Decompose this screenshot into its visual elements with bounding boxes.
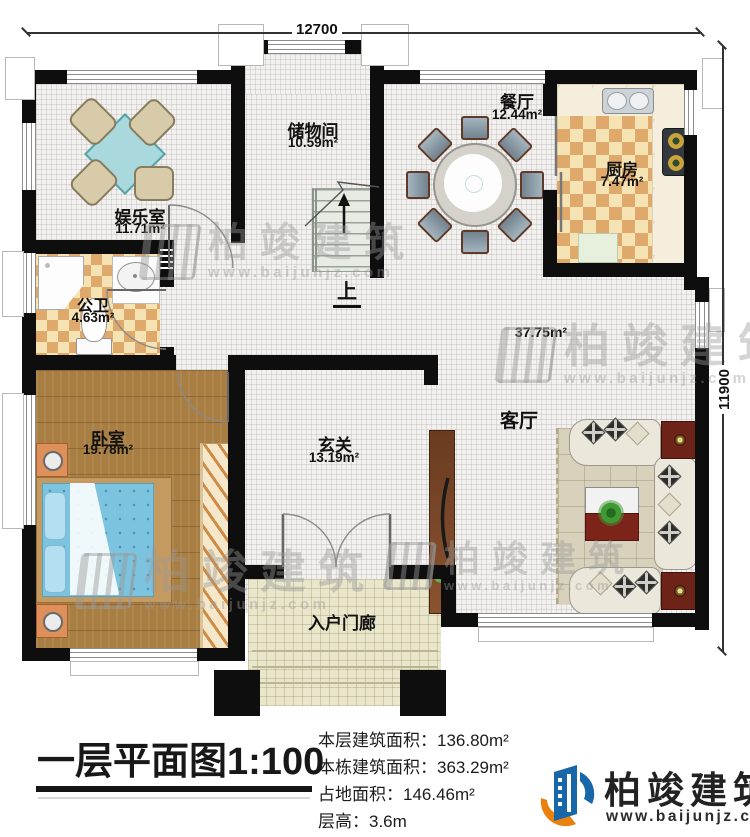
stat-row: 占地面积：146.46m² xyxy=(318,780,475,805)
porch-pillar xyxy=(214,670,260,716)
drawing-element xyxy=(558,778,562,782)
drawing-element xyxy=(133,274,137,278)
nightstand xyxy=(36,443,68,477)
stat-label: 层高： xyxy=(318,812,369,831)
wall xyxy=(228,355,438,370)
room-label-porch: 入户门廊 xyxy=(308,609,376,634)
drawing-element xyxy=(558,794,562,798)
room-area-bedroom: 19.78m² xyxy=(83,442,133,457)
window xyxy=(695,302,709,348)
room-area-kitchen: 7.47m² xyxy=(601,174,644,189)
porch-pillar xyxy=(400,670,446,716)
room-area-storage: 10.59m² xyxy=(288,135,338,150)
burner xyxy=(668,155,684,171)
stat-label: 占地面积： xyxy=(318,785,403,804)
sill xyxy=(2,251,24,317)
wall xyxy=(228,355,245,661)
plan-title-scale: 1:100 xyxy=(227,741,324,783)
porch-step xyxy=(252,666,438,668)
sill xyxy=(70,661,199,676)
floor-plan: 娱乐室 11.71m² 储物间 10.59m² 餐厅 12.44m² 厨房 7.… xyxy=(0,0,750,720)
window xyxy=(22,253,36,313)
window xyxy=(70,648,197,661)
drawing-element xyxy=(567,774,571,812)
nightstand xyxy=(36,604,68,638)
sill xyxy=(2,393,24,529)
wall xyxy=(543,263,697,277)
title-underline xyxy=(36,786,312,792)
plant xyxy=(596,498,626,528)
window xyxy=(22,123,36,190)
drawing-element xyxy=(558,802,562,806)
chair xyxy=(520,171,544,199)
room-area-living: 37.75m² xyxy=(515,324,567,340)
wall xyxy=(22,240,174,254)
room-area-entertainment: 11.71m² xyxy=(115,221,165,236)
kitchen-sink xyxy=(602,88,654,114)
room-label-living: 客厅 xyxy=(500,406,538,433)
chair xyxy=(461,116,489,140)
dimension-line-top xyxy=(26,32,702,34)
sill xyxy=(361,24,409,66)
sill xyxy=(5,57,35,100)
window xyxy=(684,90,697,135)
logo-swoosh-blue xyxy=(580,772,594,804)
porch-step xyxy=(252,650,438,652)
floor-plan-page: 娱乐室 11.71m² 储物间 10.59m² 餐厅 12.44m² 厨房 7.… xyxy=(0,0,750,837)
stat-row: 本层建筑面积：136.80m² xyxy=(318,726,509,751)
wall xyxy=(228,565,284,579)
pillow xyxy=(44,545,66,593)
window xyxy=(67,70,197,84)
dimension-right-value: 11900 xyxy=(716,365,733,414)
room-area-bathroom: 4.63m² xyxy=(72,310,115,325)
stairs-up-label: 上 xyxy=(333,275,361,308)
wall xyxy=(684,277,709,290)
stat-value: 146.46m² xyxy=(403,785,475,804)
brand-name: 柏竣建筑 xyxy=(604,760,750,814)
room-area-dining: 12.44m² xyxy=(492,107,542,122)
window xyxy=(268,40,345,54)
brand-url: www.baijunjz.com xyxy=(606,808,750,826)
dimension-line-right xyxy=(722,46,724,652)
plan-title-text: 一层平面图 xyxy=(37,741,227,783)
pillow xyxy=(44,492,66,540)
stat-value: 363.29m² xyxy=(437,758,509,777)
end-table xyxy=(661,572,699,610)
sink-basin xyxy=(607,92,627,110)
title-underline-shadow xyxy=(38,797,310,799)
door-post xyxy=(160,245,173,273)
cutting-board xyxy=(578,233,618,263)
drawing-element xyxy=(43,612,63,632)
drawing-element xyxy=(558,786,562,790)
stat-row: 层高：3.6m xyxy=(318,807,407,832)
shower-drain xyxy=(45,263,50,268)
sink-basin xyxy=(629,92,649,110)
window xyxy=(478,613,652,627)
sill xyxy=(218,24,264,66)
dining-table-center xyxy=(465,175,483,193)
title-block: 一层平面图1:100 本层建筑面积：136.80m² 本栋建筑面积：363.29… xyxy=(0,718,750,837)
wall xyxy=(424,368,438,385)
sill xyxy=(478,627,654,642)
stat-value: 136.80m² xyxy=(437,731,509,750)
room-area-entry: 13.19m² xyxy=(309,450,359,465)
burner xyxy=(668,133,684,149)
stat-value: 3.6m xyxy=(369,812,407,831)
sill xyxy=(702,58,724,109)
window xyxy=(420,70,545,84)
chair xyxy=(461,230,489,254)
wall xyxy=(543,70,557,116)
table-star xyxy=(674,434,686,446)
chair xyxy=(406,171,430,199)
wall xyxy=(22,355,176,370)
brand-logo-icon xyxy=(534,758,598,832)
wall xyxy=(389,565,443,579)
drawing-element xyxy=(43,451,63,471)
window xyxy=(22,395,36,525)
chair xyxy=(134,166,174,201)
end-table xyxy=(661,421,699,459)
drawing-element xyxy=(534,758,598,832)
plan-title: 一层平面图1:100 xyxy=(37,730,324,785)
stat-label: 本层建筑面积： xyxy=(318,731,437,750)
dimension-top-value: 12700 xyxy=(292,21,342,38)
logo-building xyxy=(554,765,577,821)
stat-row: 本栋建筑面积：363.29m² xyxy=(318,753,509,778)
stat-label: 本栋建筑面积： xyxy=(318,758,437,777)
bath-sink xyxy=(117,262,155,292)
table-star xyxy=(674,585,686,597)
